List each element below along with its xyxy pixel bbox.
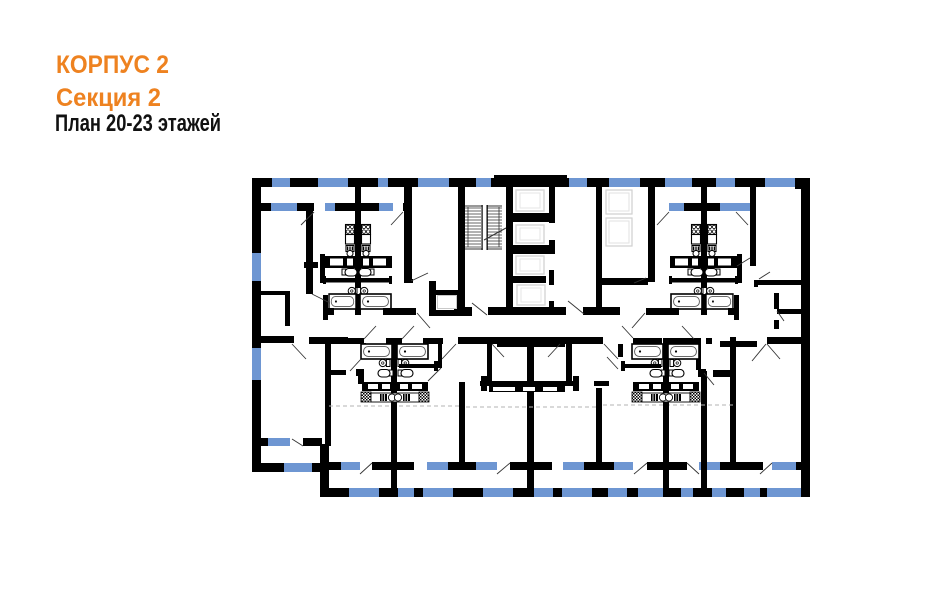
svg-text:Секция 2: Секция 2 [56, 84, 161, 112]
svg-text:План 20-23 этажей: План 20-23 этажей [55, 110, 221, 137]
svg-text:КОРПУС 2: КОРПУС 2 [56, 51, 169, 79]
